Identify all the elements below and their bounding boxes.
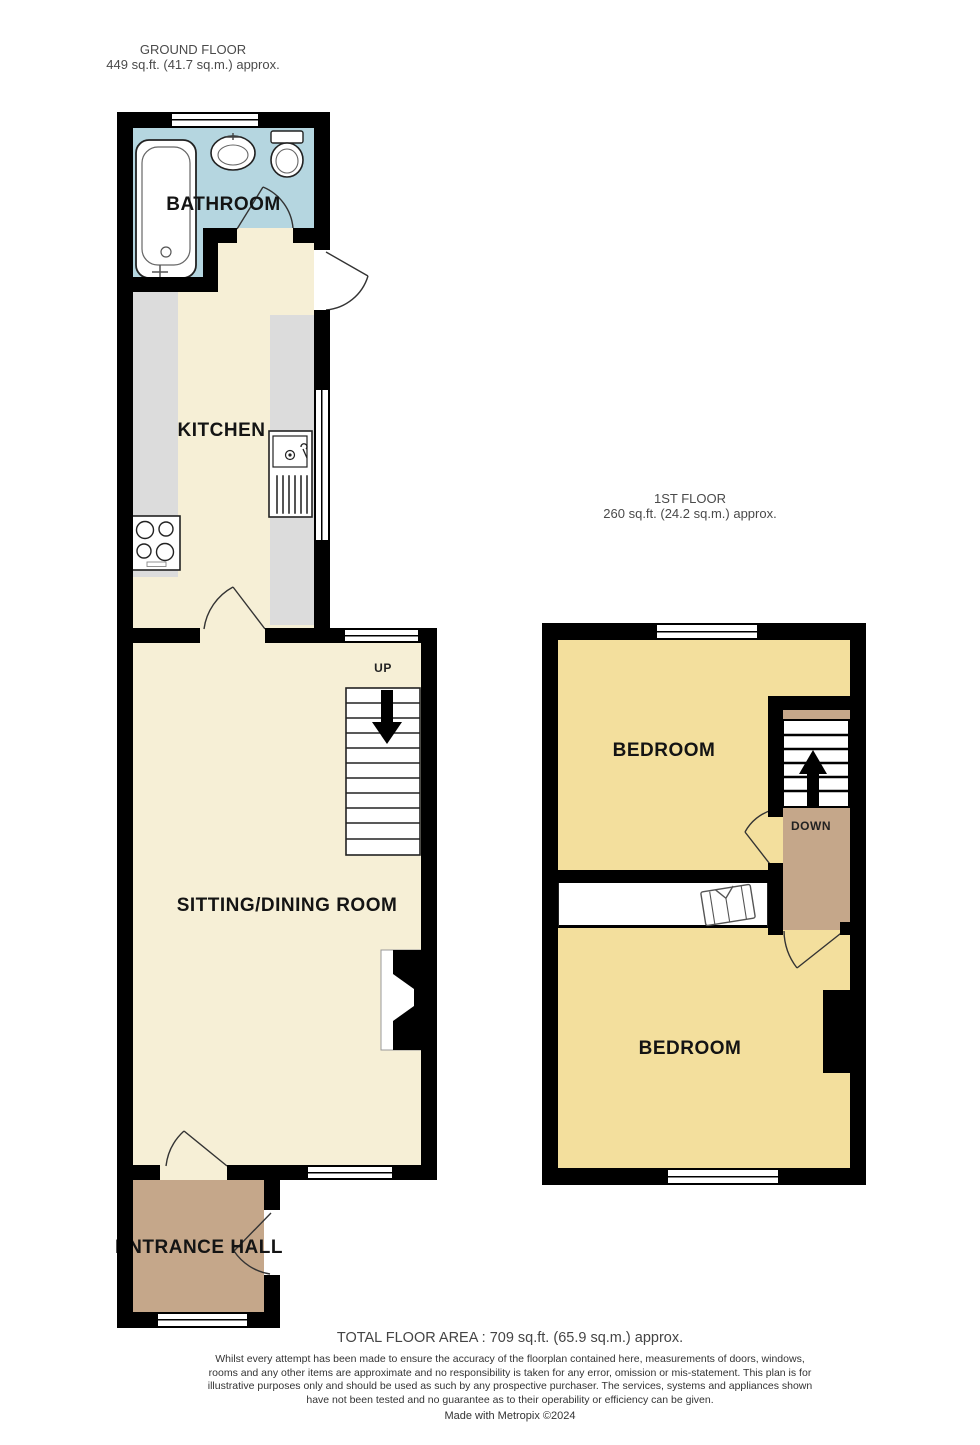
basin-icon xyxy=(211,133,255,170)
door-arcs xyxy=(166,187,845,1274)
stairs-up-label: UP xyxy=(346,661,420,675)
wall xyxy=(133,628,200,643)
wall xyxy=(247,1312,280,1328)
wall xyxy=(133,1312,158,1328)
landing-bedroom-door xyxy=(784,930,845,968)
wall xyxy=(542,1168,668,1185)
ground-floor-title: GROUND FLOOR xyxy=(58,42,328,57)
fixtures-overlay xyxy=(0,0,980,1445)
wall xyxy=(850,623,866,1185)
sink-icon xyxy=(269,431,312,517)
wall xyxy=(840,922,852,935)
window xyxy=(668,1168,778,1185)
wall xyxy=(227,1165,308,1180)
toilet-icon xyxy=(271,131,303,177)
window xyxy=(345,628,418,643)
disclaimer-text: Whilst every attempt has been made to en… xyxy=(200,1353,820,1408)
wall xyxy=(768,863,783,935)
wall xyxy=(293,228,330,243)
kitchen-label: KITCHEN xyxy=(131,420,312,442)
metropix-credit: Made with Metropix ©2024 xyxy=(110,1410,910,1422)
bedroom-back-label: BEDROOM xyxy=(580,1038,800,1060)
window xyxy=(158,1312,247,1328)
first-floor-title: 1ST FLOOR xyxy=(555,491,825,506)
total-floor-area: TOTAL FLOOR AREA : 709 sq.ft. (65.9 sq.m… xyxy=(110,1330,910,1346)
bedroom-front-label: BEDROOM xyxy=(558,740,770,762)
wall xyxy=(314,540,330,628)
wall xyxy=(392,1165,437,1180)
ground-floor-header: GROUND FLOOR 449 sq.ft. (41.7 sq.m.) app… xyxy=(58,42,328,73)
first-floor-area: 260 sq.ft. (24.2 sq.m.) approx. xyxy=(555,506,825,521)
bathroom-label: BATHROOM xyxy=(133,194,314,216)
wall xyxy=(133,277,218,292)
floorplan-page: GROUND FLOOR 449 sq.ft. (41.7 sq.m.) app… xyxy=(0,0,980,1445)
wall xyxy=(421,628,437,1180)
ground-floor-area: 449 sq.ft. (41.7 sq.m.) approx. xyxy=(58,57,328,72)
bedroom-landing-door xyxy=(745,810,773,868)
sitting-dining-room-label: SITTING/DINING ROOM xyxy=(147,895,427,917)
window xyxy=(308,1165,392,1180)
stairs-down-label: DOWN xyxy=(775,819,847,833)
wall xyxy=(558,623,657,640)
wall xyxy=(314,310,330,390)
sitting-hall-door xyxy=(166,1131,227,1166)
kitchen-sitting-door xyxy=(204,587,265,629)
stairs-down xyxy=(783,720,849,807)
first-floor-header: 1ST FLOOR 260 sq.ft. (24.2 sq.m.) approx… xyxy=(555,491,825,522)
shirt-icon xyxy=(700,883,755,925)
stairs-up xyxy=(346,688,420,855)
hob-icon xyxy=(132,516,180,570)
wall xyxy=(133,1165,160,1180)
wall xyxy=(542,623,558,1185)
wall xyxy=(768,696,783,817)
kitchen-back-door xyxy=(326,252,368,310)
footer: TOTAL FLOOR AREA : 709 sq.ft. (65.9 sq.m… xyxy=(110,1330,910,1422)
wall xyxy=(778,1168,866,1185)
window xyxy=(657,623,757,640)
wall xyxy=(264,1180,280,1210)
wall xyxy=(117,112,133,1328)
wall xyxy=(558,870,770,883)
chimney-breast xyxy=(823,990,852,1073)
wall xyxy=(265,628,345,643)
window xyxy=(172,112,258,128)
window xyxy=(314,390,330,540)
